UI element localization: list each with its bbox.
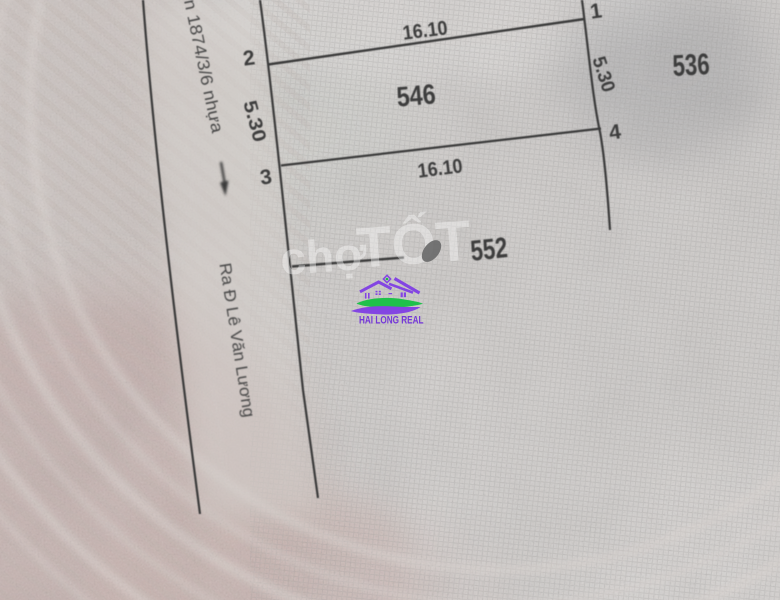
svg-text:TỐT: TỐT: [355, 208, 473, 281]
svg-text:546: 546: [395, 78, 437, 112]
svg-text:552: 552: [469, 232, 509, 268]
svg-text:HAI LONG REAL: HAI LONG REAL: [359, 315, 424, 327]
svg-text:536: 536: [672, 48, 711, 83]
